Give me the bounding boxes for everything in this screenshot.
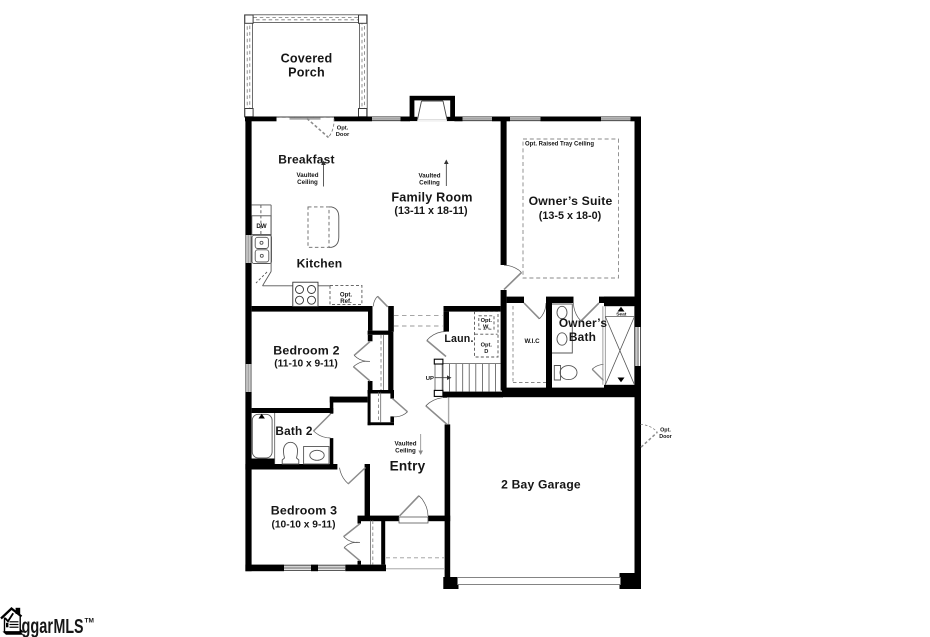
svg-text:UP: UP [426,376,434,382]
svg-text:Kitchen: Kitchen [297,256,343,270]
svg-text:2 Bay Garage: 2 Bay Garage [501,478,581,492]
svg-text:Bath 2: Bath 2 [275,424,312,438]
svg-text:Ceiling: Ceiling [419,180,440,187]
svg-text:Vaulted: Vaulted [296,172,318,179]
svg-text:Opt.: Opt. [481,343,493,349]
svg-text:D: D [484,349,488,355]
svg-text:Door: Door [336,132,350,138]
svg-text:Ceiling: Ceiling [297,179,318,186]
svg-text:Covered: Covered [281,52,333,66]
svg-text:Bath: Bath [569,330,596,344]
svg-text:Family Room: Family Room [391,190,472,204]
svg-text:Bedroom 2: Bedroom 2 [273,344,340,358]
svg-text:Seat: Seat [616,311,627,317]
svg-text:Breakfast: Breakfast [278,152,335,166]
svg-text:Ref.: Ref. [340,298,352,305]
svg-text:Opt.: Opt. [337,125,349,131]
svg-text:(11-10 x 9-11): (11-10 x 9-11) [274,359,337,370]
svg-text:(13-5 x 18-0): (13-5 x 18-0) [539,210,602,222]
svg-text:(13-11 x 18-11): (13-11 x 18-11) [394,205,468,217]
svg-text:Opt.: Opt. [481,318,493,324]
svg-text:W.: W. [483,325,490,331]
svg-text:Porch: Porch [288,66,325,80]
svg-text:Laun.: Laun. [444,333,473,345]
svg-text:Bedroom 3: Bedroom 3 [271,504,338,518]
svg-text:Vaulted: Vaulted [418,173,440,180]
svg-text:Door: Door [659,434,672,440]
svg-text:ggar: ggar [22,615,54,637]
svg-text:DW: DW [256,223,266,230]
svg-text:Ceiling: Ceiling [395,447,416,454]
svg-text:Vaulted: Vaulted [394,440,416,447]
svg-text:TM: TM [85,618,94,625]
svg-text:W.I.C: W.I.C [524,338,540,345]
svg-text:Owner’s: Owner’s [559,316,608,330]
svg-text:MLS: MLS [54,615,84,637]
svg-text:Opt. Raised Tray Ceiling: Opt. Raised Tray Ceiling [525,142,594,148]
svg-text:Entry: Entry [390,458,426,473]
svg-text:(10-10 x 9-11): (10-10 x 9-11) [272,520,336,531]
svg-text:Opt.: Opt. [660,428,671,434]
svg-text:Owner’s Suite: Owner’s Suite [529,194,613,208]
